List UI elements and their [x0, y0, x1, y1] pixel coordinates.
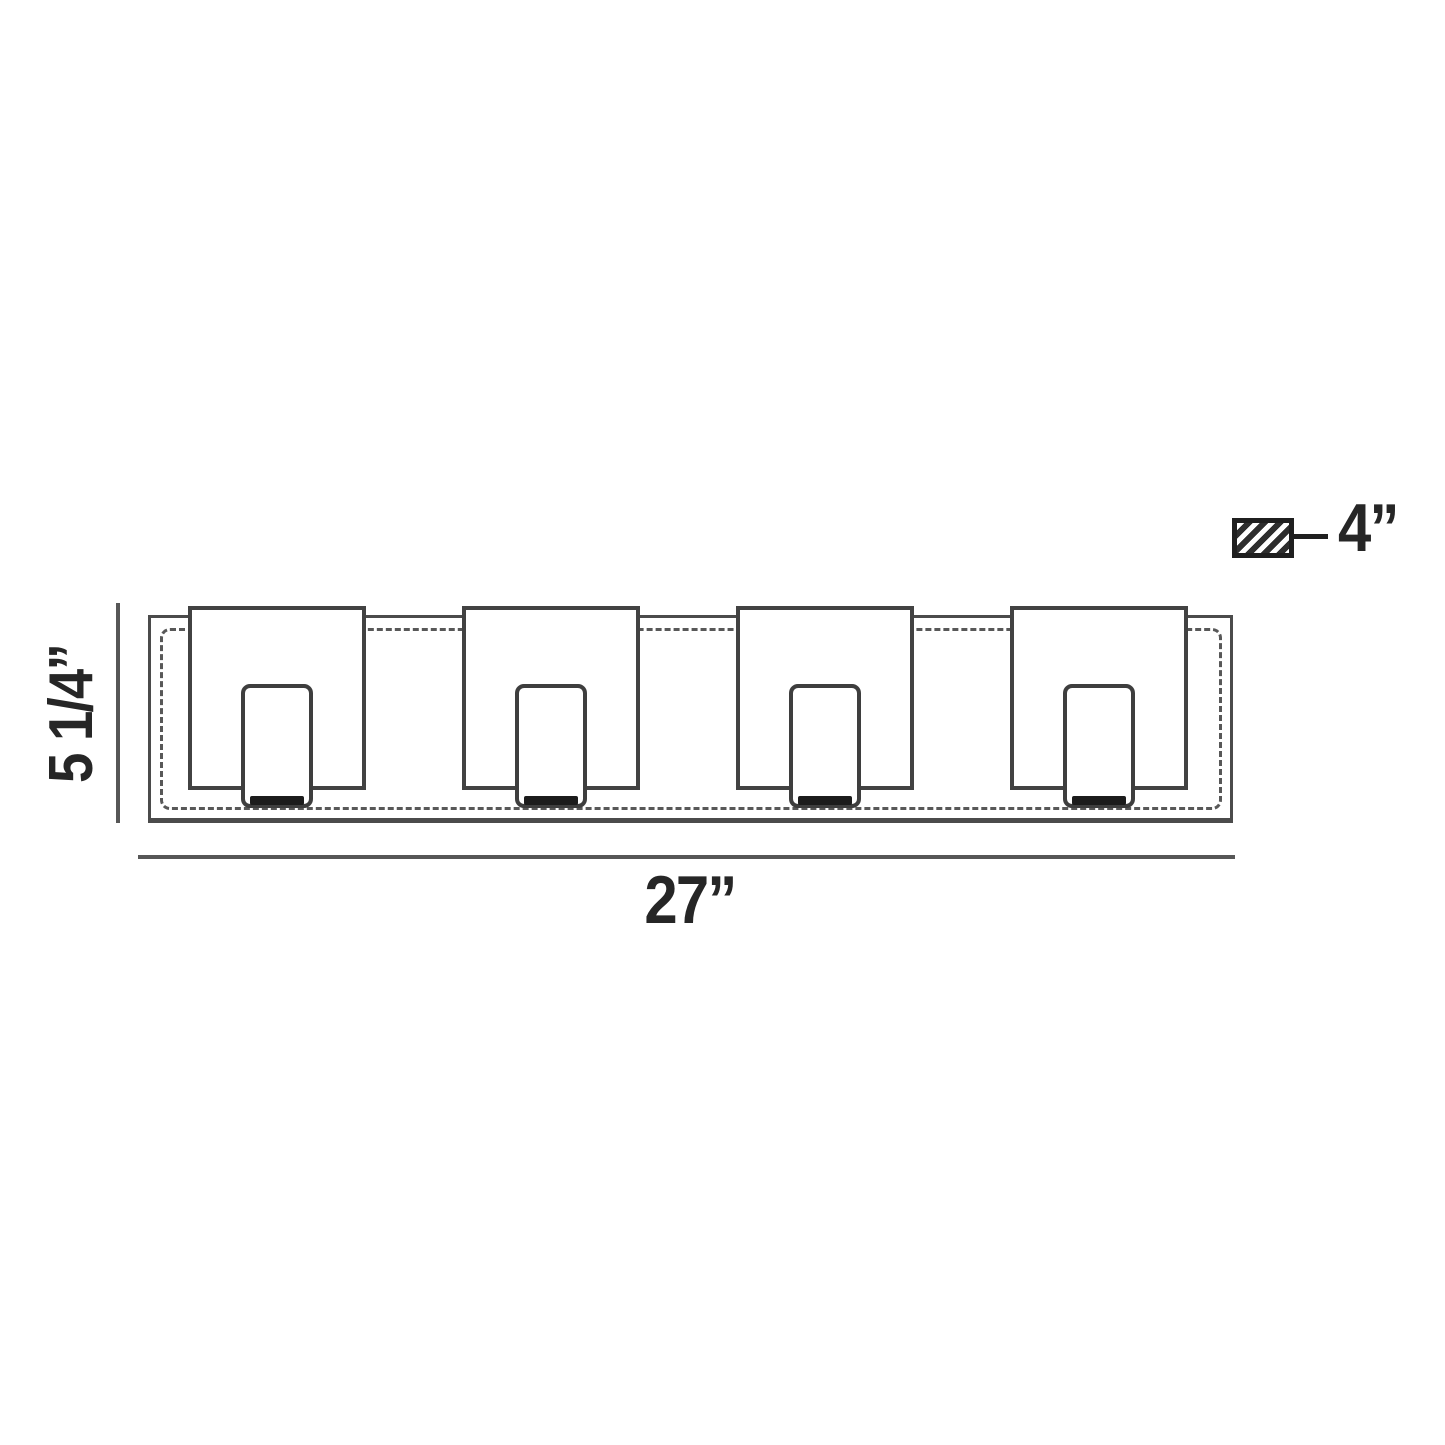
light-shade-2 — [462, 606, 640, 790]
light-shade-1 — [188, 606, 366, 790]
light-shade-4 — [1010, 606, 1188, 790]
lamp-socket-2 — [524, 796, 578, 805]
lamp-4 — [1063, 684, 1135, 808]
height-dimension-line — [116, 603, 120, 823]
width-dimension-line — [138, 855, 1235, 859]
lamp-socket-3 — [798, 796, 852, 805]
lamp-2 — [515, 684, 587, 808]
lamp-socket-4 — [1072, 796, 1126, 805]
depth-leader-line — [1294, 534, 1328, 539]
height-dimension-label: 5 1/4” — [39, 604, 105, 824]
width-dimension-label: 27” — [602, 866, 778, 934]
light-shade-3 — [736, 606, 914, 790]
lamp-3 — [789, 684, 861, 808]
lamp-1 — [241, 684, 313, 808]
lamp-socket-1 — [250, 796, 304, 805]
diagram-canvas: 5 1/4” 27” 4” — [0, 0, 1445, 1445]
depth-dimension-label: 4” — [1338, 494, 1398, 562]
hatched-depth-swatch-icon — [1232, 518, 1294, 558]
